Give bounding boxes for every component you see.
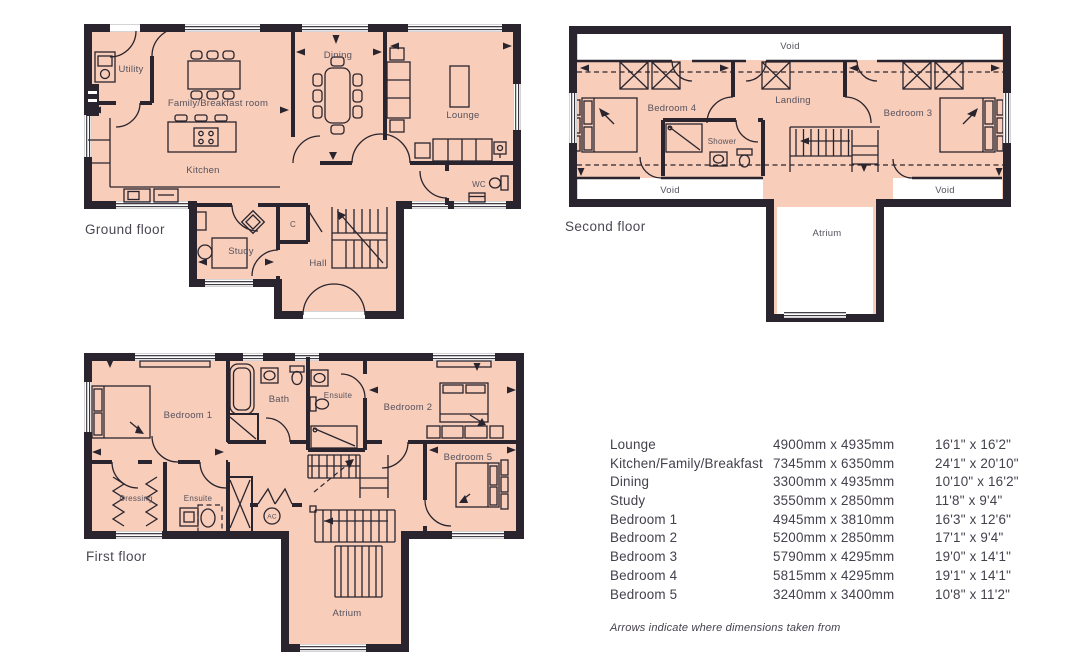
room-name: Bedroom 3 [610, 549, 773, 564]
room-label-ensuite-top: Ensuite [324, 391, 353, 400]
table-row: Dining 3300mm x 4935mm 10'10" x 16'2" [610, 474, 1060, 493]
metric-size: 4900mm x 4935mm [773, 437, 935, 452]
room-label-lounge: Lounge [446, 110, 479, 121]
metric-size: 4945mm x 3810mm [773, 512, 935, 527]
first-floor-title: First floor [86, 549, 147, 564]
room-name: Study [610, 493, 773, 508]
imperial-size: 19'1" x 14'1" [935, 568, 1060, 583]
table-row: Bedroom 1 4945mm x 3810mm 16'3" x 12'6" [610, 512, 1060, 531]
room-label-ensuite-bottom: Ensuite [184, 494, 213, 503]
table-row: Study 3550mm x 2850mm 11'8" x 9'4" [610, 493, 1060, 512]
room-label-dining: Dining [324, 50, 352, 61]
room-label-bedroom3: Bedroom 3 [884, 108, 933, 119]
imperial-size: 11'8" x 9'4" [935, 493, 1060, 508]
ground-floor-plan: Utility Family/Breakfast room Kitchen Di… [70, 8, 550, 338]
table-row: Bedroom 4 5815mm x 4295mm 19'1" x 14'1" [610, 568, 1060, 587]
room-label-utility: Utility [119, 64, 144, 75]
metric-size: 5200mm x 2850mm [773, 530, 935, 545]
imperial-size: 16'1" x 16'2" [935, 437, 1060, 452]
room-name: Lounge [610, 437, 773, 452]
room-name: Bedroom 4 [610, 568, 773, 583]
room-label-bedroom4: Bedroom 4 [648, 103, 697, 114]
table-row: Kitchen/Family/Breakfast 7345mm x 6350mm… [610, 456, 1060, 475]
metric-size: 5790mm x 4295mm [773, 549, 935, 564]
room-label-atrium2: Atrium [813, 228, 842, 239]
first-floor-plan: AC Bedroom 1 Bath [70, 345, 550, 660]
room-name: Kitchen/Family/Breakfast [610, 456, 773, 471]
imperial-size: 19'0" x 14'1" [935, 549, 1060, 564]
room-name: Bedroom 5 [610, 587, 773, 602]
room-name: Dining [610, 474, 773, 489]
metric-size: 7345mm x 6350mm [773, 456, 935, 471]
room-name: Bedroom 1 [610, 512, 773, 527]
table-row: Bedroom 3 5790mm x 4295mm 19'0" x 14'1" [610, 549, 1060, 568]
room-label-bedroom2: Bedroom 2 [384, 402, 433, 413]
room-label-bedroom5: Bedroom 5 [444, 452, 493, 463]
room-label-shower: Shower [708, 137, 737, 146]
imperial-size: 10'8" x 11'2" [935, 587, 1060, 602]
room-label-dressing: Dressing [119, 494, 153, 503]
room-label-family: Family/Breakfast room [168, 98, 268, 109]
ground-floor-title: Ground floor [85, 222, 165, 237]
imperial-size: 16'3" x 12'6" [935, 512, 1060, 527]
imperial-size: 17'1" x 9'4" [935, 530, 1060, 545]
room-label-atrium1: Atrium [333, 608, 362, 619]
room-label-cupboard: C [290, 220, 296, 229]
table-row: Bedroom 2 5200mm x 2850mm 17'1" x 9'4" [610, 530, 1060, 549]
second-floor-plan: Void Bedroom 4 Landing Bedroom 3 Shower … [555, 15, 1025, 335]
room-label-bath: Bath [269, 394, 290, 405]
second-floor-title: Second floor [565, 219, 646, 234]
ac-label: AC [267, 514, 277, 521]
room-label-void-left: Void [660, 185, 680, 196]
room-label-void-top: Void [780, 41, 800, 52]
metric-size: 3550mm x 2850mm [773, 493, 935, 508]
atrium-area [777, 207, 873, 314]
room-label-bedroom1: Bedroom 1 [164, 410, 213, 421]
room-label-kitchen: Kitchen [186, 165, 219, 176]
imperial-size: 10'10" x 16'2" [935, 474, 1060, 489]
dimensions-table: Lounge 4900mm x 4935mm 16'1" x 16'2" Kit… [610, 437, 1060, 605]
room-label-hall: Hall [309, 258, 326, 269]
room-label-wc: WC [472, 180, 486, 189]
table-footnote: Arrows indicate where dimensions taken f… [610, 622, 841, 634]
table-row: Lounge 4900mm x 4935mm 16'1" x 16'2" [610, 437, 1060, 456]
imperial-size: 24'1" x 20'10" [935, 456, 1060, 471]
metric-size: 3300mm x 4935mm [773, 474, 935, 489]
room-label-study: Study [228, 246, 254, 257]
table-row: Bedroom 5 3240mm x 3400mm 10'8" x 11'2" [610, 587, 1060, 606]
room-label-void-right: Void [935, 185, 955, 196]
room-label-landing: Landing [775, 95, 811, 106]
metric-size: 3240mm x 3400mm [773, 587, 935, 602]
room-name: Bedroom 2 [610, 530, 773, 545]
floorplan-sheet: Utility Family/Breakfast room Kitchen Di… [0, 0, 1078, 660]
metric-size: 5815mm x 4295mm [773, 568, 935, 583]
